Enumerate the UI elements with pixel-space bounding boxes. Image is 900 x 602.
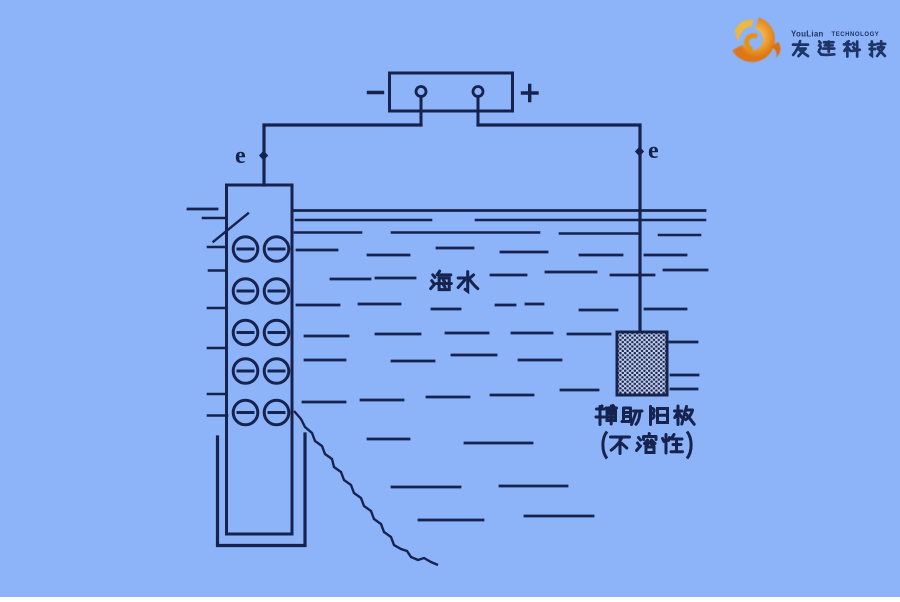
svg-text:e: e	[648, 138, 659, 164]
svg-text:e: e	[235, 143, 246, 169]
svg-text:YouLian: YouLian	[791, 30, 824, 39]
svg-text:TECHNOLOGY: TECHNOLOGY	[832, 32, 880, 38]
